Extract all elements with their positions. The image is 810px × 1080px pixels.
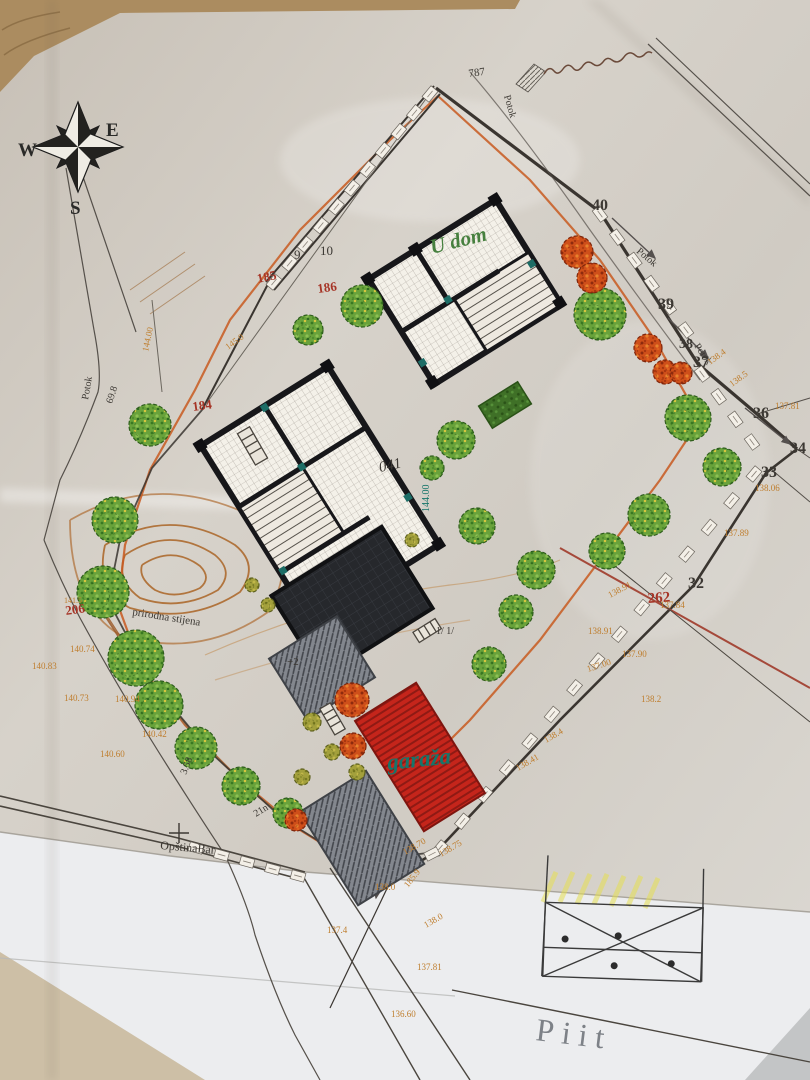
tree	[459, 508, 495, 544]
plan-label: 9	[294, 247, 301, 262]
plan-label: 137.84	[660, 600, 685, 610]
site-plan-photo: W E S 7879104039383736343332185186184206…	[0, 0, 810, 1080]
plan-label: 33	[761, 464, 777, 481]
plan-label: +2	[287, 656, 299, 668]
plan-label: 186	[316, 278, 338, 296]
compass-south: S	[70, 198, 81, 219]
plan-label: 1/ 1/	[436, 626, 454, 637]
bush	[349, 764, 365, 780]
bush	[294, 769, 310, 785]
tree	[222, 767, 260, 805]
plan-label: 140.74	[70, 644, 95, 654]
plan-label: 137.90	[622, 649, 647, 659]
compass-west: W	[18, 140, 37, 161]
plan-label: 40	[592, 197, 608, 214]
plan-label: 184	[191, 396, 213, 414]
plan-label: 144.00	[421, 485, 432, 513]
tree	[574, 288, 626, 340]
plan-label: 36	[753, 405, 769, 422]
tree	[108, 630, 164, 686]
plan-label: 38	[679, 337, 693, 352]
plan-label: 34	[790, 440, 806, 457]
tree	[129, 404, 171, 446]
site-plan-drawing: W E S 7879104039383736343332185186184206…	[0, 0, 810, 1080]
plan-label: 140.83	[32, 661, 57, 671]
autumn-tree	[670, 362, 692, 384]
tree	[589, 533, 625, 569]
bush	[245, 578, 259, 592]
plan-label: 32	[688, 575, 704, 592]
plan-label: 138.0	[375, 882, 396, 892]
plan-label: 137.4	[327, 925, 348, 935]
compass-east: E	[106, 120, 119, 141]
tree	[293, 315, 323, 345]
tree	[499, 595, 533, 629]
plan-label: 137.81	[775, 401, 800, 411]
plan-label: 137.89	[724, 528, 749, 538]
plan-label: 136.60	[391, 1009, 416, 1019]
tree	[341, 285, 383, 327]
tree	[472, 647, 506, 681]
autumn-tree	[340, 733, 366, 759]
plan-label: 140.42	[142, 729, 167, 739]
plan-label: 138.91	[588, 626, 613, 636]
tree	[92, 497, 138, 543]
plan-label: 140.73	[64, 693, 89, 703]
bush	[324, 744, 340, 760]
plan-label: 141.5	[64, 596, 82, 605]
autumn-tree	[285, 809, 307, 831]
plan-label: 39	[658, 296, 674, 313]
plan-label: 137.81	[417, 962, 442, 972]
tree	[665, 395, 711, 441]
plan-label: 787	[468, 66, 487, 80]
autumn-tree	[634, 334, 662, 362]
tree	[517, 551, 555, 589]
plan-label: 10	[320, 243, 333, 258]
plan-label: 138.06	[755, 483, 780, 493]
autumn-tree	[577, 263, 607, 293]
bush	[303, 713, 321, 731]
plan-label: 138.2	[641, 694, 661, 704]
plan-label: 140.94	[115, 694, 140, 704]
tree	[420, 456, 444, 480]
plan-label: 140.60	[100, 749, 125, 759]
bush	[261, 598, 275, 612]
tree	[628, 494, 670, 536]
autumn-tree	[335, 683, 369, 717]
bush	[405, 533, 419, 547]
tree	[703, 448, 741, 486]
tree	[437, 421, 475, 459]
tree	[135, 681, 183, 729]
